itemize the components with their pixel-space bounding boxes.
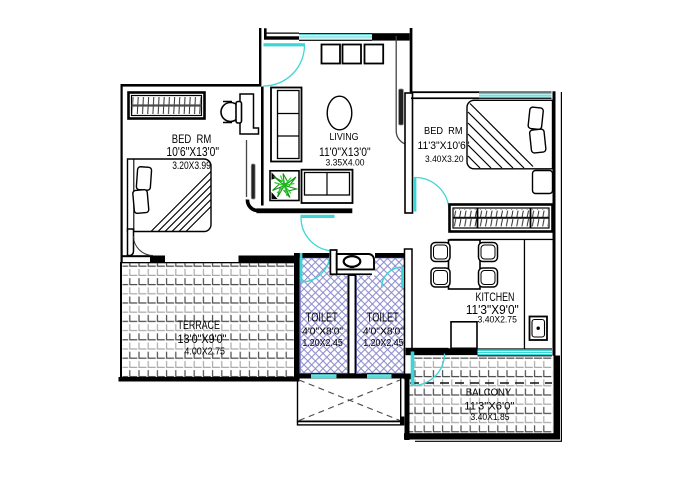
svg-text:1.20X2.45: 1.20X2.45 [302, 338, 343, 349]
svg-text:BALCONY: BALCONY [466, 388, 512, 399]
svg-text:1.20X2.45: 1.20X2.45 [363, 338, 404, 349]
svg-text:3.40X3.20: 3.40X3.20 [425, 154, 464, 165]
svg-text:TOILET: TOILET [306, 309, 338, 324]
svg-text:3.40X1.85: 3.40X1.85 [471, 412, 510, 423]
svg-text:LIVING: LIVING [330, 132, 359, 143]
svg-text:TOILET: TOILET [367, 309, 399, 324]
svg-text:BED RM: BED RM [172, 132, 212, 146]
svg-text:11'3"X6'0": 11'3"X6'0" [464, 401, 514, 413]
svg-text:11'3"X10'6": 11'3"X10'6" [418, 140, 470, 152]
svg-text:4'0"X8'0": 4'0"X8'0" [302, 327, 343, 338]
svg-text:13'0"X9'0": 13'0"X9'0" [178, 332, 227, 346]
svg-text:3.35X4.00: 3.35X4.00 [326, 158, 365, 169]
svg-text:3.20X3.99: 3.20X3.99 [172, 160, 211, 172]
svg-text:3.40X2.75: 3.40X2.75 [478, 315, 517, 325]
svg-text:10'6"X13'0": 10'6"X13'0" [166, 145, 219, 159]
svg-text:TERRACE: TERRACE [178, 318, 220, 332]
svg-text:4'0"X8'0": 4'0"X8'0" [363, 327, 404, 338]
svg-text:BED RM: BED RM [424, 125, 463, 137]
svg-text:4.00X2.75: 4.00X2.75 [184, 347, 225, 358]
svg-text:KITCHEN: KITCHEN [476, 290, 515, 304]
